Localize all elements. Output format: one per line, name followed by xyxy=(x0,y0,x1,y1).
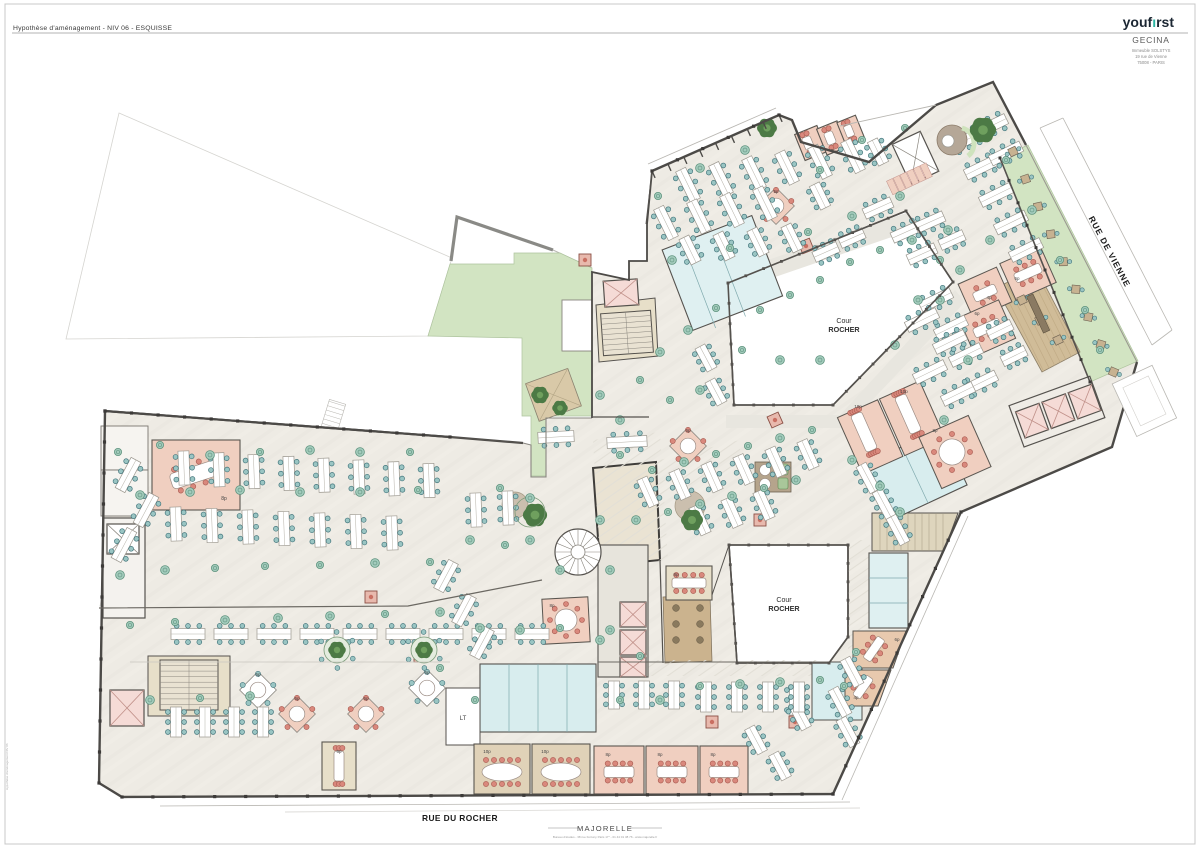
svg-text:Bureau d'études - 38 rue Fortu: Bureau d'études - 38 rue Fortuny Paris 1… xyxy=(553,835,657,839)
svg-text:4p: 4p xyxy=(853,695,859,700)
svg-text:Hypothèse d'aménagement - NIV: Hypothèse d'aménagement - NIV 06 - ESQUI… xyxy=(13,25,172,32)
svg-text:Hypothèse d'aménagement NIV 06: Hypothèse d'aménagement NIV 06 xyxy=(5,743,9,790)
svg-text:6p: 6p xyxy=(894,637,900,642)
svg-text:6p: 6p xyxy=(1014,276,1020,281)
svg-text:LT: LT xyxy=(460,716,467,722)
svg-text:GECINA: GECINA xyxy=(1132,35,1169,45)
svg-text:8p: 8p xyxy=(549,603,555,608)
svg-text:8p: 8p xyxy=(221,496,227,502)
svg-text:8p: 8p xyxy=(710,752,716,757)
svg-text:5p: 5p xyxy=(363,696,369,701)
svg-text:Cour: Cour xyxy=(776,597,792,604)
svg-text:MAJORELLE: MAJORELLE xyxy=(577,824,633,833)
svg-text:4p: 4p xyxy=(986,295,992,300)
svg-text:8p: 8p xyxy=(657,752,663,757)
svg-text:8p: 8p xyxy=(673,572,679,577)
svg-text:6p: 6p xyxy=(974,311,980,316)
svg-text:youfırst: youfırst xyxy=(1123,14,1175,30)
svg-text:ROCHER: ROCHER xyxy=(828,325,860,334)
svg-text:ROCHER: ROCHER xyxy=(768,604,800,613)
svg-text:5p: 5p xyxy=(424,670,430,675)
svg-text:Cour: Cour xyxy=(836,318,852,325)
svg-text:8p: 8p xyxy=(605,752,611,757)
svg-text:6p: 6p xyxy=(336,749,342,754)
svg-text:5p: 5p xyxy=(685,428,691,433)
svg-text:10p: 10p xyxy=(541,749,549,754)
svg-text:19 rue de Vienne: 19 rue de Vienne xyxy=(1135,54,1167,59)
svg-text:10p: 10p xyxy=(483,749,491,754)
svg-text:5p: 5p xyxy=(294,696,300,701)
svg-text:10p: 10p xyxy=(900,389,908,394)
svg-text:8p: 8p xyxy=(932,428,938,433)
svg-text:10p: 10p xyxy=(854,404,862,409)
svg-text:5p: 5p xyxy=(255,672,261,677)
svg-text:75008 - PARIS: 75008 - PARIS xyxy=(1137,60,1165,65)
svg-text:Immeuble SOLSTYS: Immeuble SOLSTYS xyxy=(1132,48,1171,53)
svg-text:5p: 5p xyxy=(773,189,779,194)
svg-text:RUE DU ROCHER: RUE DU ROCHER xyxy=(422,813,498,823)
